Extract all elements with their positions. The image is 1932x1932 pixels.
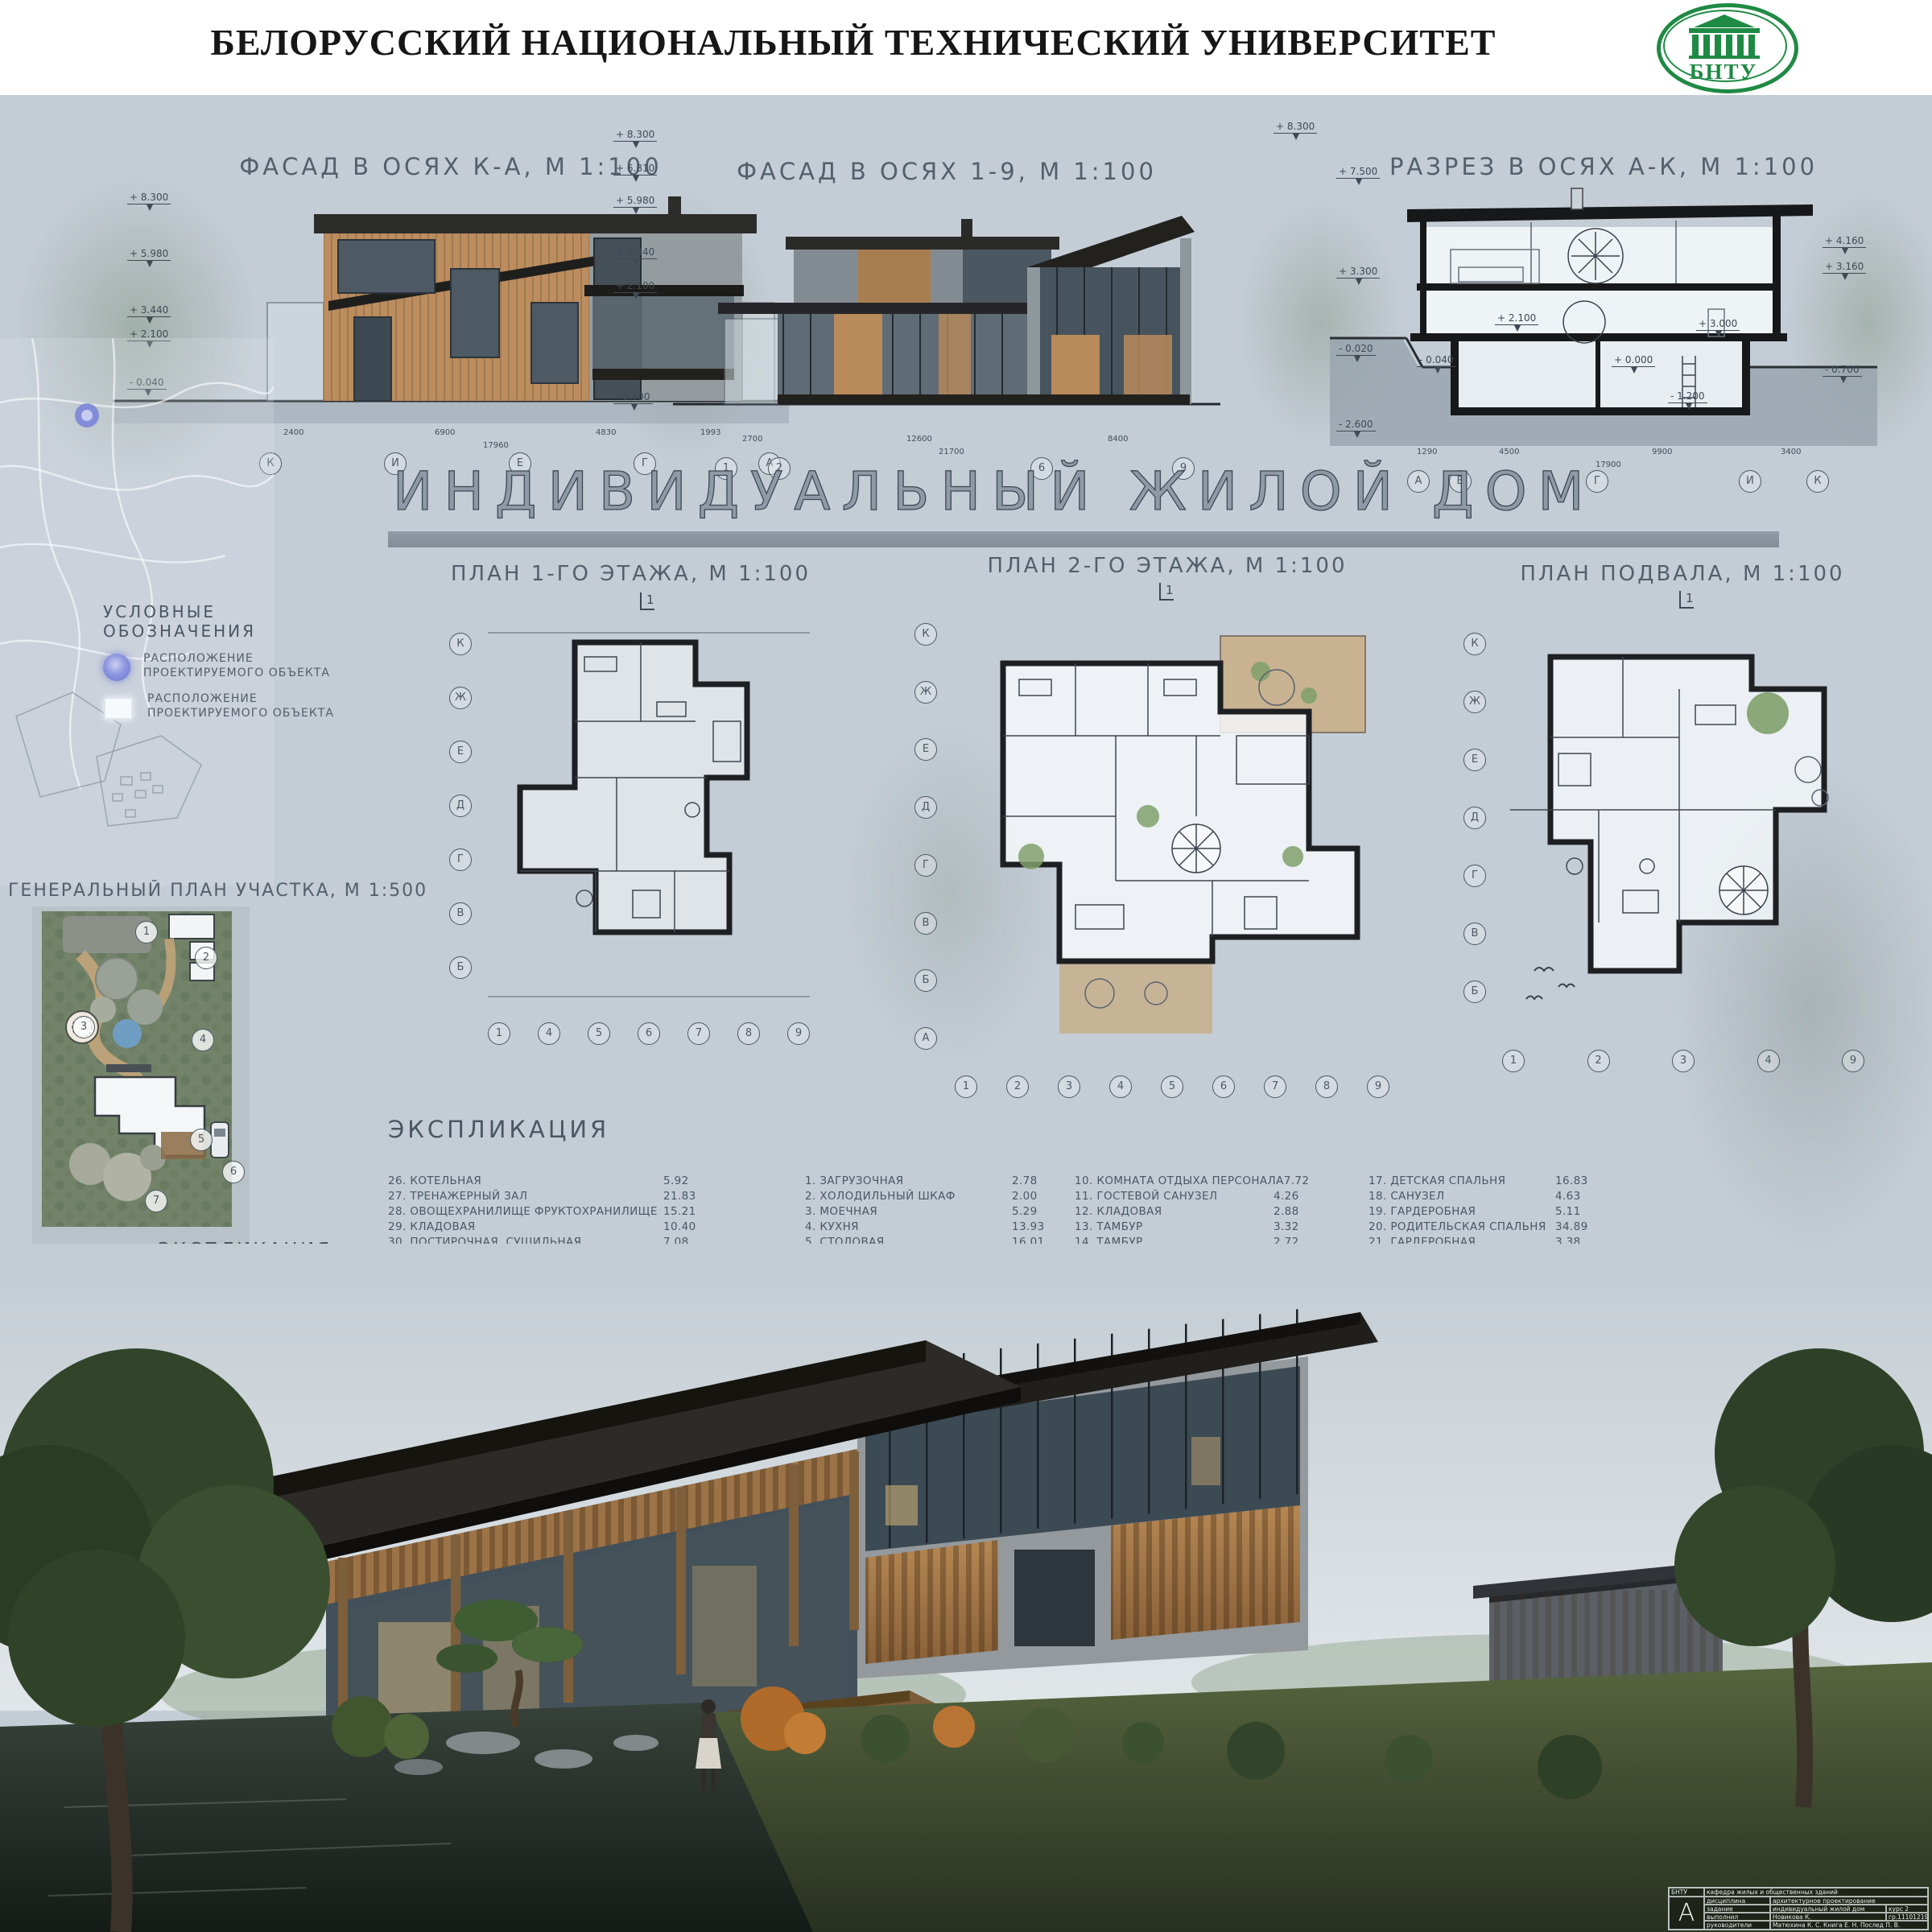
- stamp-logo-letter: А: [1669, 1897, 1704, 1930]
- stamp-label: задание: [1704, 1905, 1770, 1913]
- axis-bubble: 8: [1315, 1075, 1338, 1098]
- facade-19-title: ФАСАД В ОСЯХ 1-9, М 1:100: [673, 158, 1220, 185]
- axis-bubble: 7: [687, 1022, 710, 1045]
- elevation-mark: + 3.440: [613, 246, 657, 259]
- axis-bubble: 3: [1672, 1050, 1695, 1072]
- axis-bubble: К: [1806, 470, 1829, 493]
- plan-basement-drawing: [1502, 625, 1864, 1027]
- schedule-row: 1. ЗАГРУЗОЧНАЯ2.78: [805, 1174, 1059, 1189]
- axis-bubble: 4: [1757, 1050, 1780, 1072]
- dim-label: 9900: [1652, 448, 1672, 456]
- axis-bubble: Е: [1463, 749, 1486, 771]
- axis-bubble: Б: [1463, 980, 1486, 1003]
- axis-bubble: И: [1739, 470, 1761, 493]
- axis-bubble: Д: [914, 796, 937, 819]
- axis-bubble: 6: [1212, 1075, 1235, 1098]
- axis-bubble: 3: [1058, 1075, 1080, 1098]
- section-cut-marker: 1: [1679, 591, 1694, 609]
- section-cut-marker: 1: [640, 592, 654, 610]
- elevation-mark: + 3.440: [127, 304, 171, 317]
- dim-total-label: 17900: [1596, 460, 1621, 469]
- schedule-row: 3. МОЕЧНАЯ5.29: [805, 1204, 1059, 1220]
- legend: УСЛОВНЫЕ ОБОЗНАЧЕНИЯ РАСПОЛОЖЕНИЕ ПРОЕКТ…: [103, 602, 369, 720]
- axis-bubble: К: [1463, 633, 1486, 655]
- schedule-row: 12. КЛАДОВАЯ2.88: [1075, 1204, 1320, 1220]
- dim-label: 4500: [1499, 448, 1519, 456]
- project-title: ИНДИВИДУАЛЬНЫЙ ЖИЛОЙ ДОМ: [393, 460, 1595, 522]
- axis-bubble: 2: [1006, 1075, 1029, 1098]
- stamp-extra: курс 2: [1886, 1905, 1928, 1913]
- university-title: БЕЛОРУССКИЙ НАЦИОНАЛЬНЫЙ ТЕХНИЧЕСКИЙ УНИ…: [0, 21, 1707, 64]
- axis-bubble: Ж: [1463, 691, 1486, 713]
- stamp-value: архитектурное проектирование: [1770, 1897, 1928, 1905]
- bntu-logo-icon: БНТУ: [1657, 3, 1798, 93]
- dim-label: 2400: [283, 428, 303, 437]
- plan-floor2-drawing: [955, 615, 1389, 1066]
- stamp-extra: гр.11101219: [1886, 1913, 1928, 1921]
- elevation-mark: + 8.300: [127, 192, 171, 204]
- elevation-mark: + 2.100: [1495, 312, 1538, 325]
- axis-bubble: Г: [1463, 865, 1486, 887]
- stamp-label: руководители: [1704, 1921, 1770, 1930]
- schedule-title: ЭКСПЛИКАЦИЯ: [388, 1116, 609, 1143]
- stamp-department: кафедра жилых и общественных зданий: [1704, 1888, 1928, 1897]
- elevation-mark: - 0.040: [1417, 354, 1456, 367]
- plan-floor1-left-axes: КЖЕДГВБ: [449, 633, 472, 979]
- title-underline-bar: [388, 531, 1779, 547]
- schedule-row: 2. ХОЛОДИЛЬНЫЙ ШКАФ2.00: [805, 1189, 1059, 1204]
- elevation-mark: + 8.300: [613, 129, 657, 142]
- dim-label: 8400: [1108, 435, 1128, 444]
- axis-bubble: Е: [449, 741, 472, 763]
- plan-basement-bottom-axes: 12349: [1502, 1050, 1864, 1072]
- axis-bubble: В: [449, 902, 472, 925]
- axis-bubble: Б: [449, 956, 472, 979]
- location-dot-icon: [103, 654, 130, 681]
- axis-bubble: К: [914, 623, 937, 646]
- elevation-mark: + 2.100: [613, 280, 657, 293]
- site-marker: 2: [195, 947, 217, 969]
- stamp-value: Новикова К.: [1770, 1913, 1886, 1921]
- plan-floor2-panel: ПЛАН 2-ГО ЭТАЖА, М 1:100 1: [894, 554, 1441, 1133]
- axis-bubble: 9: [787, 1022, 810, 1045]
- axis-bubble: 1: [1502, 1050, 1525, 1072]
- axis-bubble: Д: [449, 795, 472, 817]
- schedule-row: 26. КОТЕЛЬНАЯ5.92: [388, 1174, 710, 1189]
- axis-bubble: А: [914, 1027, 937, 1050]
- facade-19-panel: ФАСАД В ОСЯХ 1-9, М 1:100: [673, 158, 1220, 475]
- plan-floor2-left-axes: КЖЕДГВБА: [914, 623, 937, 1050]
- axis-bubble: 4: [538, 1022, 560, 1045]
- plan-floor1-bottom-axes: 1456789: [488, 1022, 810, 1045]
- schedule-row: 29. КЛАДОВАЯ10.40: [388, 1220, 710, 1235]
- axis-bubble: 5: [1161, 1075, 1183, 1098]
- plan-floor1-title: ПЛАН 1-ГО ЭТАЖА, М 1:100: [451, 562, 811, 586]
- elevation-mark: - 0.700: [613, 391, 653, 404]
- stamp-label: дисциплина: [1704, 1897, 1770, 1905]
- schedule-row: 28. ОВОЩЕХРАНИЛИЩЕ ФРУКТОХРАНИЛИЩЕ15.21: [388, 1204, 710, 1220]
- plan-floor2-title: ПЛАН 2-ГО ЭТАЖА, М 1:100: [894, 554, 1441, 578]
- elevation-mark: + 0.000: [1612, 354, 1655, 367]
- university-header: БЕЛОРУССКИЙ НАЦИОНАЛЬНЫЙ ТЕХНИЧЕСКИЙ УНИ…: [0, 0, 1932, 95]
- logo-abbr: БНТУ: [1657, 60, 1790, 85]
- plan-basement-panel: ПЛАН ПОДВАЛА, М 1:100 1: [1449, 562, 1916, 1109]
- section-ak-panel: РАЗРЕЗ В ОСЯХ А-К, М 1:100: [1330, 153, 1877, 483]
- logo-pediment: [1694, 14, 1755, 27]
- elevation-mark: - 0.020: [1336, 343, 1376, 356]
- plan-floor1-panel: ПЛАН 1-ГО ЭТАЖА, М 1:100 1: [435, 562, 853, 1093]
- elevation-mark: - 2.600: [1336, 419, 1376, 431]
- elevation-mark: + 5.980: [127, 248, 171, 261]
- legend-title: УСЛОВНЫЕ ОБОЗНАЧЕНИЯ: [103, 602, 369, 641]
- plan-basement-left-axes: КЖЕДГВБ: [1463, 633, 1486, 1003]
- stamp-value: индивидуальный жилой дом: [1770, 1905, 1886, 1913]
- schedule-row: 27. ТРЕНАЖЕРНЫЙ ЗАЛ21.83: [388, 1189, 710, 1204]
- legend-item-label: РАСПОЛОЖЕНИЕ ПРОЕКТИРУЕМОГО ОБЪЕКТА: [143, 652, 330, 680]
- site-plan-title: ГЕНЕРАЛЬНЫЙ ПЛАН УЧАСТКА, М 1:500: [8, 881, 427, 901]
- site-marker: 4: [192, 1029, 214, 1051]
- elevation-mark: + 4.160: [1823, 235, 1866, 248]
- stamp-label: выполнил: [1704, 1913, 1770, 1921]
- dim-label: 4830: [596, 428, 616, 437]
- axis-bubble: Д: [1463, 807, 1486, 829]
- axis-bubble: 1: [955, 1075, 977, 1098]
- site-marker: 7: [145, 1190, 167, 1212]
- schedule-row: 4. КУХНЯ13.93: [805, 1220, 1059, 1235]
- axis-bubble: 6: [638, 1022, 660, 1045]
- site-plan-panel: 1 2 3 4 5 6 7: [32, 906, 250, 1256]
- site-marker: 1: [135, 921, 158, 943]
- elevation-mark: - 1.200: [1668, 390, 1707, 403]
- axis-bubble: 9: [1367, 1075, 1389, 1098]
- elevation-mark: + 3.160: [1823, 261, 1866, 274]
- section-cut-marker: 1: [1159, 583, 1174, 601]
- axis-bubble: В: [914, 912, 937, 935]
- house-render: [0, 1244, 1932, 1932]
- site-marker: 6: [222, 1161, 245, 1183]
- dim-label: 3400: [1781, 448, 1801, 456]
- dim-label: 6900: [435, 428, 455, 437]
- axis-bubble: Г: [449, 848, 472, 871]
- site-marker: 5: [190, 1129, 213, 1151]
- facade-19-drawing: [673, 190, 1220, 428]
- elevation-mark: + 3.300: [1336, 266, 1380, 279]
- schedule-row: 17. ДЕТСКАЯ СПАЛЬНЯ16.83: [1368, 1174, 1602, 1189]
- axis-bubble: 5: [588, 1022, 610, 1045]
- schedule-row: 10. КОМНАТА ОТДЫХА ПЕРСОНАЛА7.72: [1075, 1174, 1320, 1189]
- location-square-icon: [104, 697, 133, 720]
- presentation-board: БЕЛОРУССКИЙ НАЦИОНАЛЬНЫЙ ТЕХНИЧЕСКИЙ УНИ…: [0, 0, 1932, 1932]
- section-ak-title: РАЗРЕЗ В ОСЯХ А-К, М 1:100: [1330, 153, 1877, 180]
- axis-bubble: 4: [1109, 1075, 1132, 1098]
- plan-floor1-drawing: [488, 625, 810, 1003]
- logo-stylobate: [1689, 56, 1760, 59]
- plan-basement-title: ПЛАН ПОДВАЛА, М 1:100: [1449, 562, 1916, 586]
- stamp-value: Матюхина К. С. Книга Е. Н. Послед П. В.: [1770, 1921, 1928, 1930]
- section-ak-drawing: [1330, 180, 1877, 446]
- axis-bubble: 2: [1587, 1050, 1610, 1072]
- plan-floor2-bottom-axes: 123456789: [955, 1075, 1389, 1098]
- site-marker: 3: [72, 1016, 95, 1038]
- dim-total-label: 21700: [939, 448, 964, 456]
- dim-total-label: 17960: [483, 441, 509, 450]
- schedule-row: 13. ТАМБУР3.32: [1075, 1220, 1320, 1235]
- schedule-row: 18. САНУЗЕЛ4.63: [1368, 1189, 1602, 1204]
- dim-label: 1290: [1417, 448, 1437, 456]
- axis-bubble: Е: [914, 738, 937, 761]
- legend-item: РАСПОЛОЖЕНИЕ ПРОЕКТИРУЕМОГО ОБЪЕКТА: [103, 692, 369, 720]
- logo-architrave: [1689, 28, 1760, 33]
- legend-item: РАСПОЛОЖЕНИЕ ПРОЕКТИРУЕМОГО ОБЪЕКТА: [103, 652, 369, 681]
- elevation-mark: + 3.000: [1696, 318, 1740, 331]
- elevation-mark: + 5.980: [613, 195, 657, 208]
- logo-columns: [1692, 35, 1757, 56]
- elevation-mark: + 7.500: [1336, 166, 1380, 179]
- axis-bubble: В: [1463, 923, 1486, 945]
- axis-bubble: Ж: [914, 681, 937, 704]
- axis-bubble: 8: [737, 1022, 760, 1045]
- elevation-mark: + 8.300: [1274, 121, 1317, 134]
- axis-bubble: Ж: [449, 687, 472, 709]
- dim-label: 12600: [906, 435, 932, 444]
- axis-bubble: 1: [488, 1022, 510, 1045]
- axis-bubble: Г: [914, 854, 937, 877]
- title-block: БНТУ кафедра жилых и общественных зданий…: [1668, 1887, 1929, 1930]
- stamp-org: БНТУ: [1669, 1888, 1704, 1897]
- axis-bubble: Б: [914, 969, 937, 992]
- axis-bubble: К: [449, 633, 472, 655]
- axis-bubble: 9: [1842, 1050, 1864, 1072]
- axis-bubble: 7: [1264, 1075, 1286, 1098]
- schedule-row: 11. ГОСТЕВОЙ САНУЗЕЛ4.26: [1075, 1189, 1320, 1204]
- schedule-row: 19. ГАРДЕРОБНАЯ5.11: [1368, 1204, 1602, 1220]
- elevation-mark: + 6.810: [613, 163, 657, 175]
- legend-item-label: РАСПОЛОЖЕНИЕ ПРОЕКТИРУЕМОГО ОБЪЕКТА: [147, 692, 334, 720]
- schedule-row: 20. РОДИТЕЛЬСКАЯ СПАЛЬНЯ34.89: [1368, 1220, 1602, 1235]
- dim-label: 2700: [742, 435, 762, 444]
- elevation-mark: - 0.700: [1823, 364, 1862, 377]
